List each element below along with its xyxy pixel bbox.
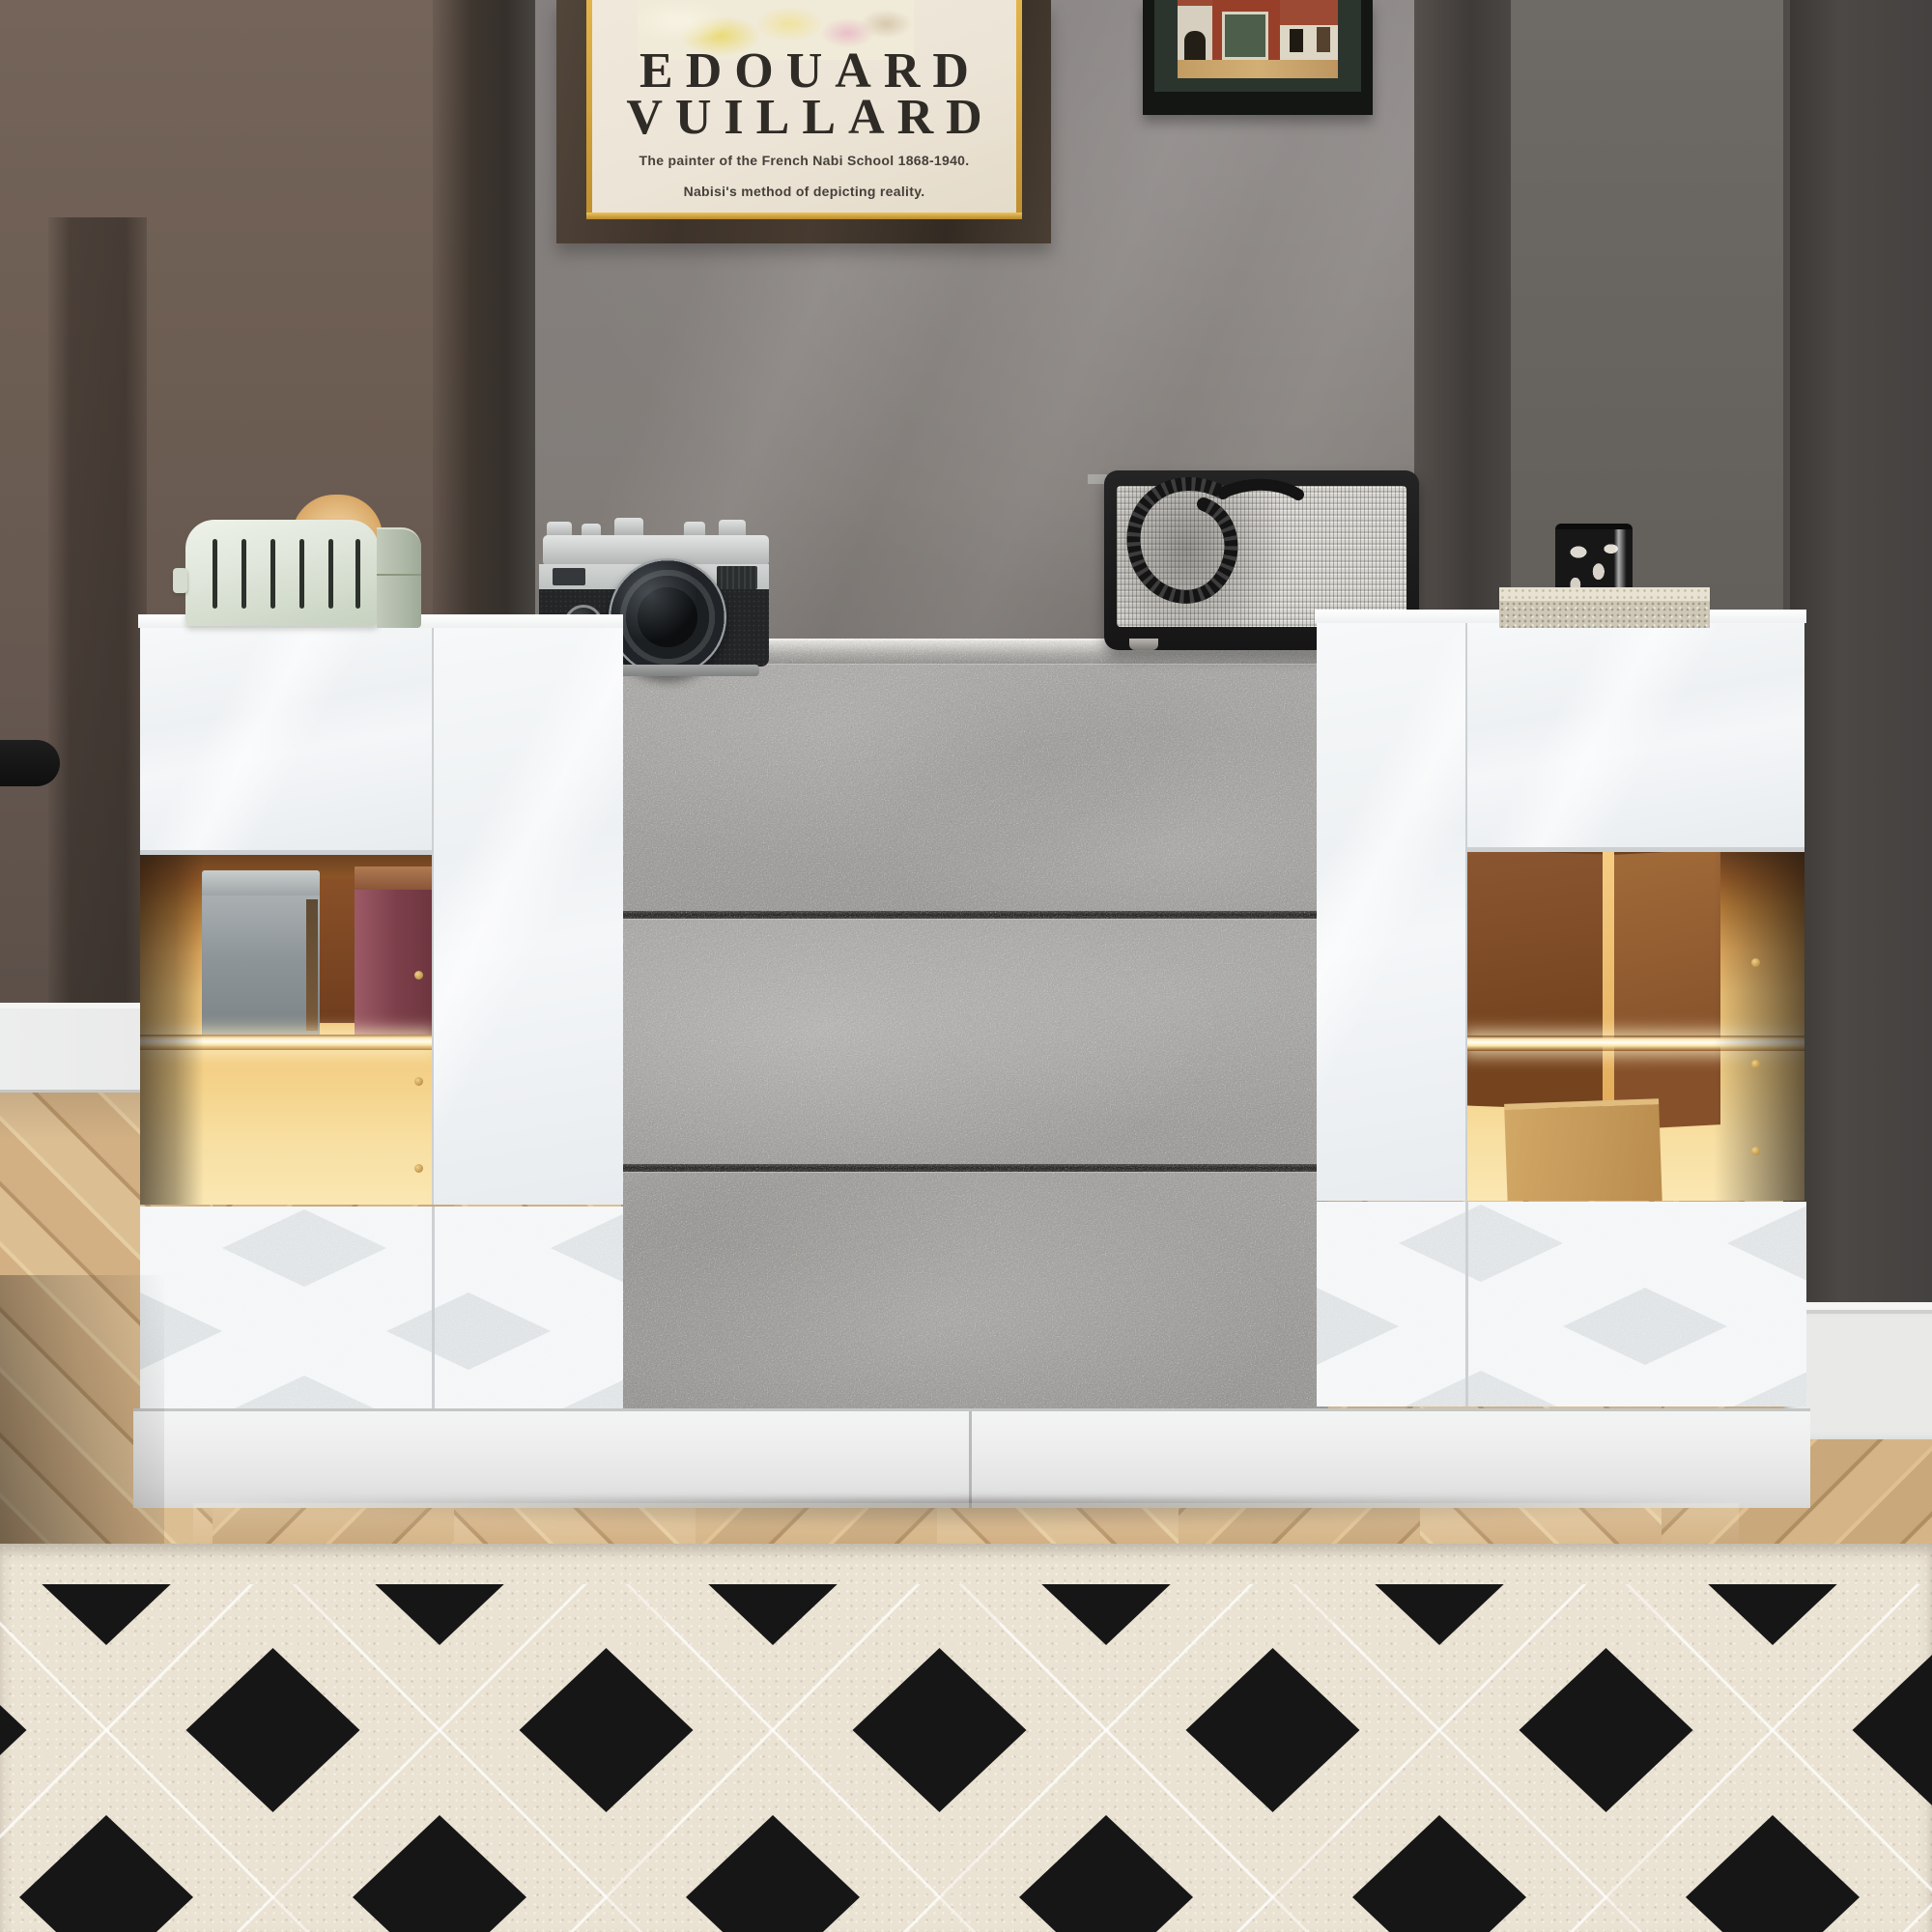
- hinge-dot: [1751, 1060, 1760, 1068]
- picture-frame: [1143, 0, 1373, 115]
- toaster-slot: [355, 539, 360, 609]
- wall-right-pillar: [1783, 0, 1932, 1306]
- picture-dark-window-1: [1290, 29, 1303, 52]
- living-room-scene: EDOUARD VUILLARD The painter of the Fren…: [0, 0, 1932, 1932]
- chair-armrest: [0, 740, 60, 786]
- camera-lens: [609, 558, 726, 676]
- camera-viewfinder: [553, 568, 585, 585]
- drawer-gap-1: [621, 911, 1328, 919]
- picture-cobble-path: [1178, 60, 1338, 78]
- tin-gray-body: [202, 895, 320, 1035]
- poster-title-line1: EDOUARD: [592, 48, 1016, 95]
- wall-corner-shadow-band: [1414, 0, 1511, 676]
- toaster-slot: [328, 539, 333, 609]
- toaster-side-panel: [377, 527, 421, 628]
- display-reflection-panel-1: [1467, 852, 1603, 1110]
- tin-maroon-lid: [355, 867, 432, 893]
- hinge-dot: [414, 971, 423, 980]
- hinge-dot: [414, 1077, 423, 1086]
- tray-front-face: [1499, 601, 1710, 628]
- plinth-seam: [969, 1411, 972, 1508]
- tin-gray-label-strip: [306, 899, 318, 1031]
- camera-meter-window: [717, 566, 757, 589]
- glass-tint-edge-left: [140, 855, 204, 1205]
- speaker-foot-left: [1129, 639, 1158, 650]
- tin-gray-lid: [202, 870, 320, 898]
- hinge-dot: [1751, 1147, 1760, 1155]
- left-cabinet-diamond-drawers: [140, 1207, 623, 1408]
- poster-frame-gold-right: [1016, 0, 1022, 219]
- display-reflection-panel-2: [1614, 852, 1720, 1130]
- toaster-lever: [173, 568, 187, 593]
- toaster-slot: [270, 539, 275, 609]
- toaster-slot: [299, 539, 304, 609]
- diamond-drawer-seam: [1465, 1202, 1468, 1406]
- toaster-side-seam: [377, 574, 421, 576]
- picture-red-shutter: [1317, 27, 1330, 52]
- cabinet-plinth: [133, 1408, 1810, 1508]
- left-display-compartment: [140, 855, 432, 1205]
- cabinet-floor-shadow: [124, 1499, 1835, 1532]
- display-brown-box: [320, 878, 356, 1023]
- concrete-drawer-2: [621, 919, 1328, 1165]
- poster-subtitle-line1: The painter of the French Nabi School 18…: [592, 153, 1016, 168]
- concrete-drawer-1: [621, 664, 1328, 912]
- poster-title-line2: VUILLARD: [592, 95, 1016, 141]
- poster-frame-gold-bottom: [586, 213, 1022, 219]
- poster-paper: EDOUARD VUILLARD The painter of the Fren…: [592, 0, 1016, 213]
- display-tin-gray: [202, 870, 320, 1035]
- drawer-gap-2: [621, 1164, 1328, 1172]
- rug-diamond-pattern: [0, 1584, 1932, 1932]
- right-cabinet-diamond-drawers: [1317, 1202, 1806, 1406]
- concrete-drawer-3: [621, 1172, 1328, 1411]
- left-cabinet-tall-door: [434, 628, 623, 1205]
- retro-toaster-body: [185, 520, 379, 626]
- toaster-slot: [241, 539, 246, 609]
- hinge-dot: [414, 1164, 423, 1173]
- tin-maroon-body: [355, 890, 432, 1035]
- right-cabinet-upper-door: [1467, 623, 1804, 847]
- picture-image: [1178, 0, 1338, 78]
- diamond-drawer-seam: [432, 1207, 435, 1408]
- wall-left-recess-strip: [48, 217, 147, 1084]
- stone-tray: [1499, 587, 1710, 628]
- toaster-slot: [213, 539, 217, 609]
- right-cabinet-tall-door: [1317, 623, 1465, 1201]
- display-tan-box: [1504, 1098, 1662, 1201]
- left-cabinet-upper-door: [140, 628, 432, 850]
- wall-right-gray: [1511, 0, 1791, 657]
- display-back-lit-gap: [1603, 852, 1614, 1122]
- concrete-drawer-unit: [621, 664, 1328, 1410]
- picture-green-window: [1222, 12, 1268, 60]
- hinge-dot: [1751, 958, 1760, 967]
- display-tin-maroon: [355, 867, 432, 1035]
- speaker-grille: [1117, 486, 1406, 627]
- poster-subtitle-line2: Nabisi's method of depicting reality.: [592, 184, 1016, 199]
- floor-corner-shadow: [0, 1275, 164, 1546]
- right-display-compartment: [1467, 852, 1804, 1201]
